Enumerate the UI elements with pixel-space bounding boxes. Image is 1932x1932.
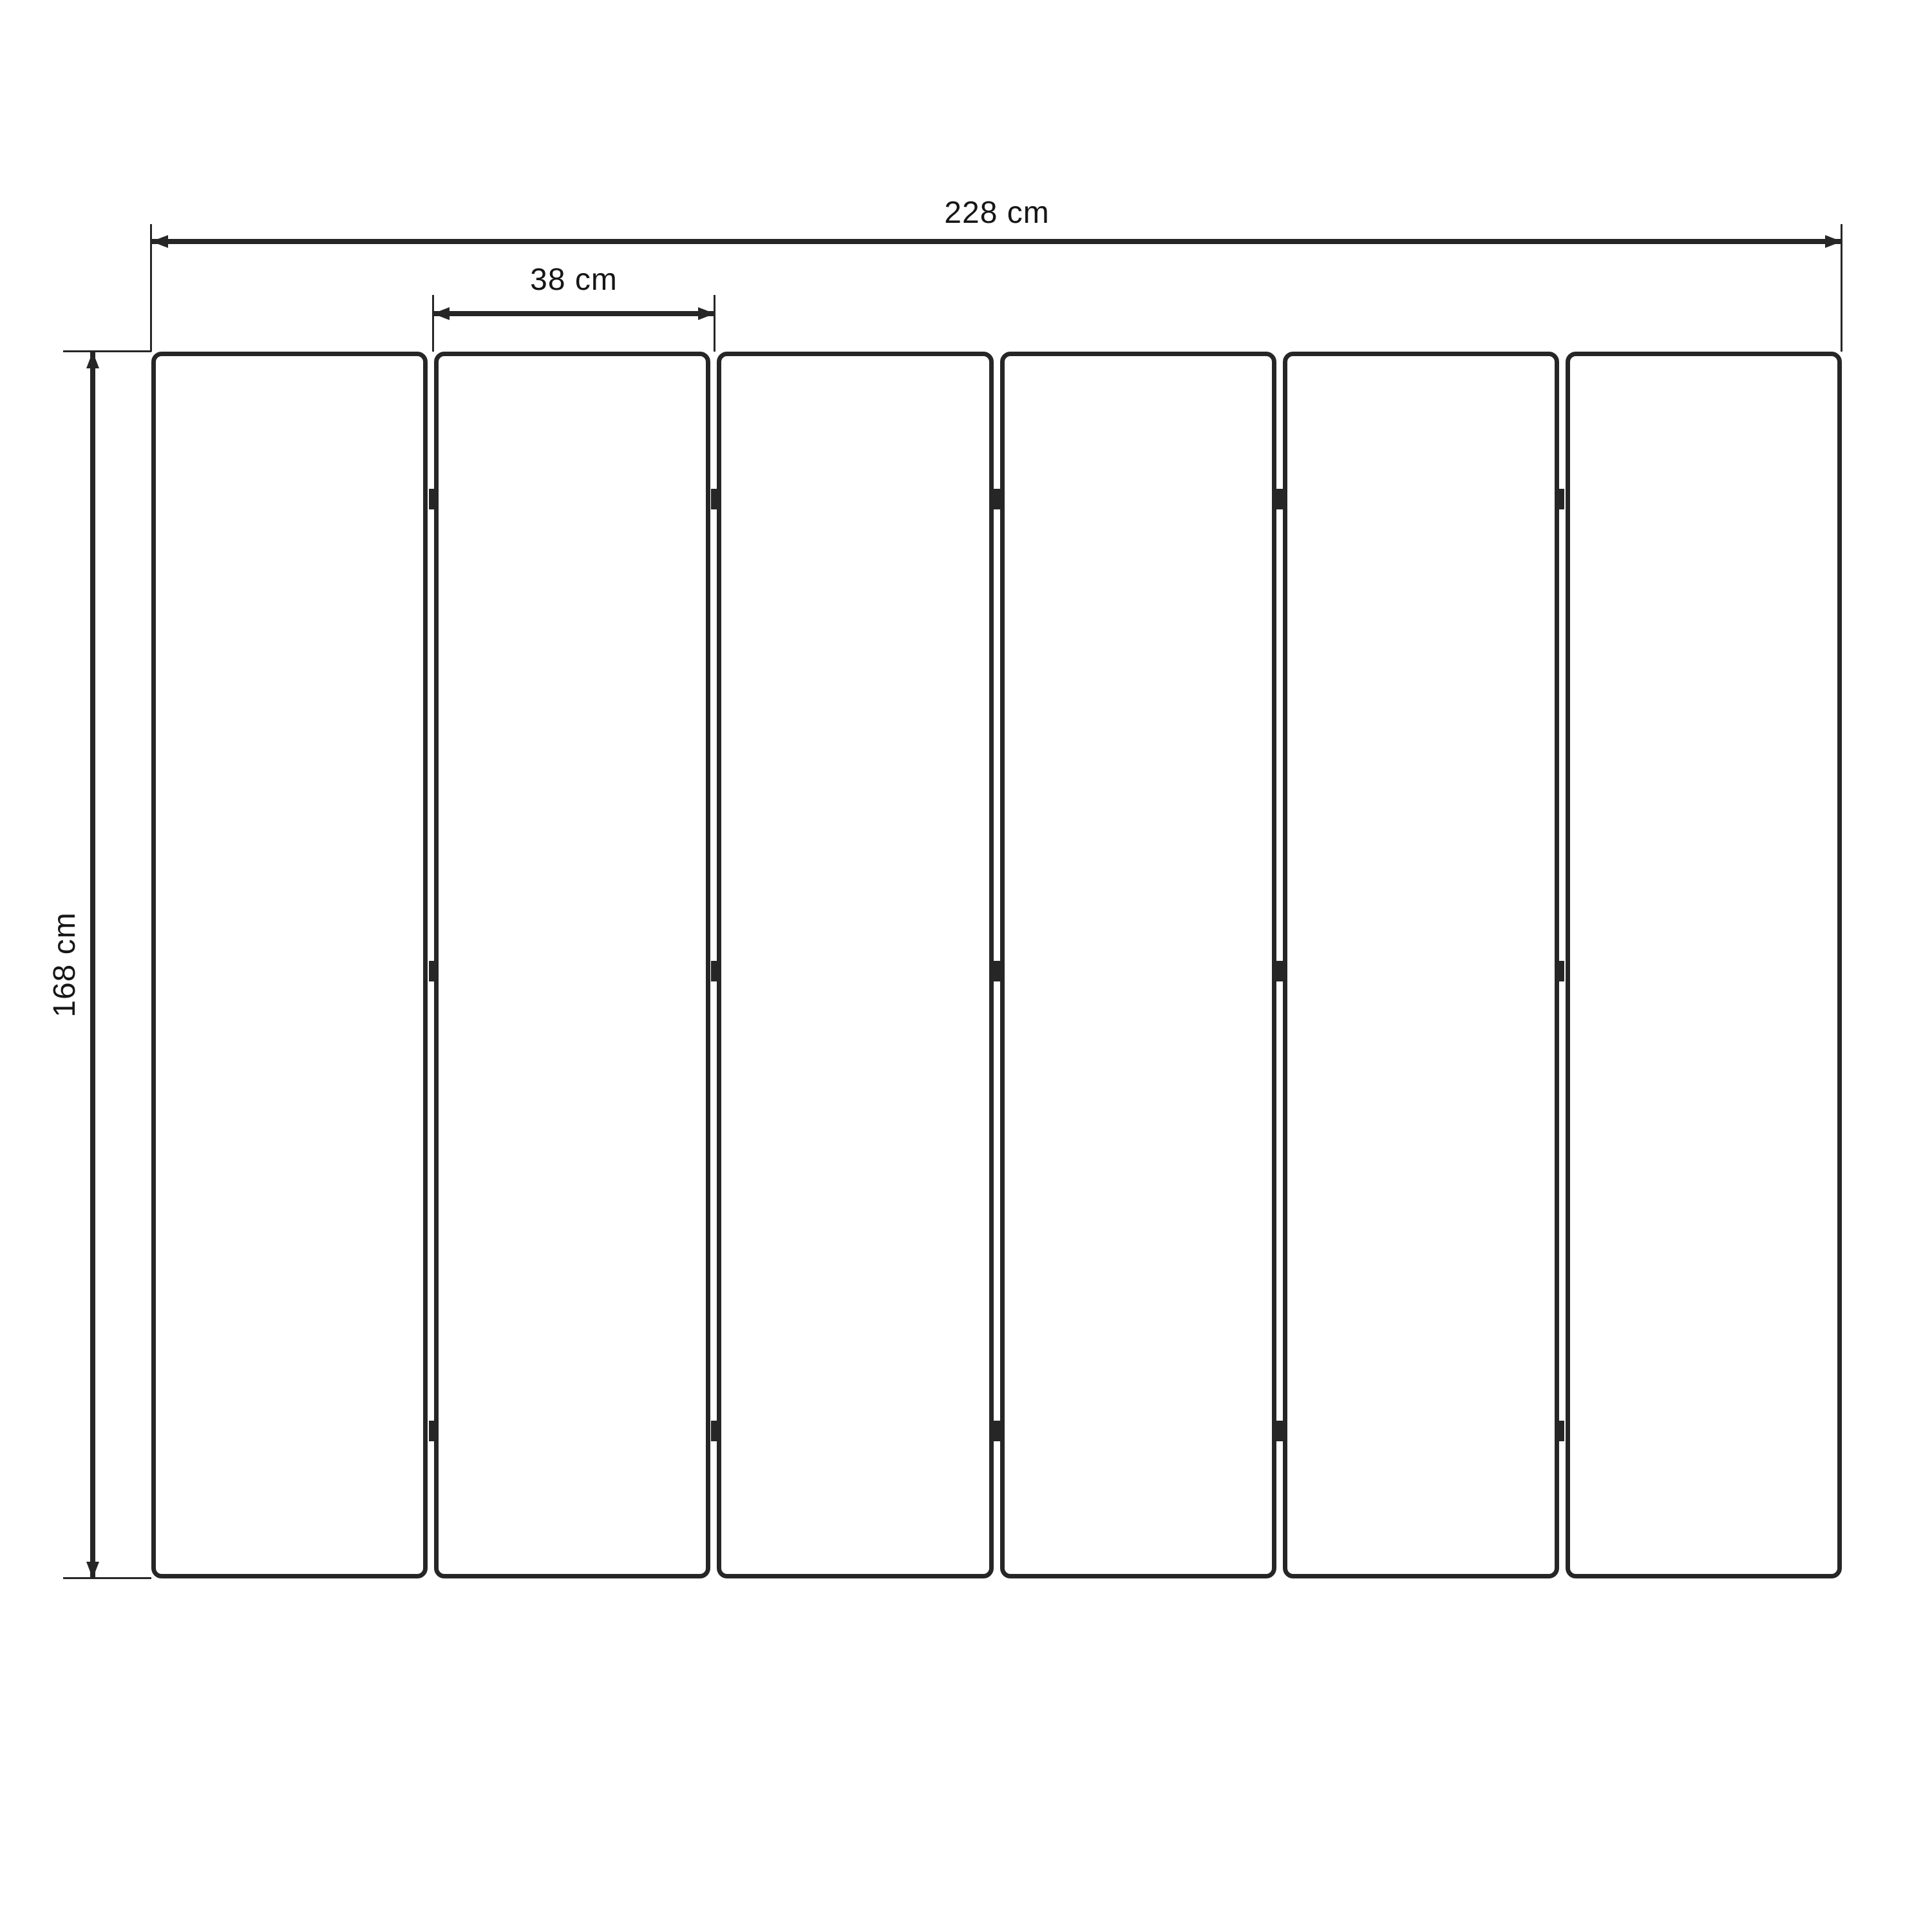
total-width-label: 228 cm xyxy=(944,198,1049,229)
hinge-mark xyxy=(711,1421,719,1441)
extension-line-height-bottom xyxy=(63,1577,151,1579)
arrow-right-icon xyxy=(698,307,715,320)
hinge-mark xyxy=(429,1421,437,1441)
hinge-mark xyxy=(429,489,437,509)
arrow-up-icon xyxy=(86,352,99,368)
hinge-mark xyxy=(429,961,437,981)
dimension-line-panel-width xyxy=(433,311,715,316)
panel xyxy=(434,352,710,1578)
hinge-mark xyxy=(1274,489,1283,509)
hinge-mark xyxy=(1274,961,1283,981)
hinge-mark xyxy=(992,961,1001,981)
arrow-left-icon xyxy=(433,307,450,320)
panel-width-label: 38 cm xyxy=(530,265,618,296)
extension-line-panel-width-left xyxy=(432,295,434,352)
panel xyxy=(1000,352,1276,1578)
hinge-mark xyxy=(1556,489,1564,509)
panel xyxy=(717,352,993,1578)
arrow-left-icon xyxy=(151,235,168,248)
dimension-line-height xyxy=(90,352,95,1578)
panel xyxy=(1566,352,1842,1578)
hinge-mark xyxy=(1274,1421,1283,1441)
hinge-mark xyxy=(711,489,719,509)
arrow-right-icon xyxy=(1825,235,1842,248)
hinge-mark xyxy=(992,489,1001,509)
dimension-line-total-width xyxy=(151,239,1842,244)
panel xyxy=(151,352,428,1578)
extension-line-panel-width-right xyxy=(714,295,715,352)
dimension-diagram: 228 cm 38 cm 168 cm xyxy=(0,0,1932,1932)
hinge-mark xyxy=(1556,961,1564,981)
hinge-mark xyxy=(992,1421,1001,1441)
hinge-mark xyxy=(1556,1421,1564,1441)
height-label: 168 cm xyxy=(50,912,80,1017)
arrow-down-icon xyxy=(86,1562,99,1578)
extension-line-height-top xyxy=(63,350,151,352)
panel xyxy=(1283,352,1559,1578)
hinge-mark xyxy=(711,961,719,981)
